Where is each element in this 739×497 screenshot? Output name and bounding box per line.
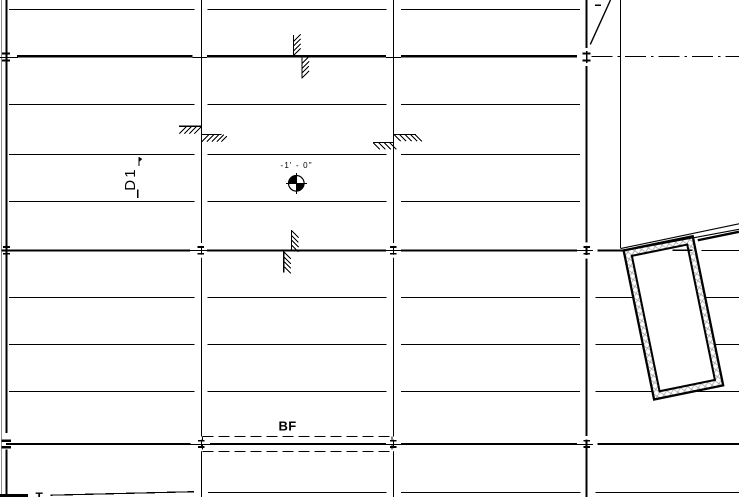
svg-text:-1' - 0": -1' - 0": [281, 161, 313, 170]
svg-text:D1: D1: [122, 167, 139, 191]
svg-text:T: T: [36, 490, 44, 497]
svg-text:BF: BF: [279, 419, 297, 434]
